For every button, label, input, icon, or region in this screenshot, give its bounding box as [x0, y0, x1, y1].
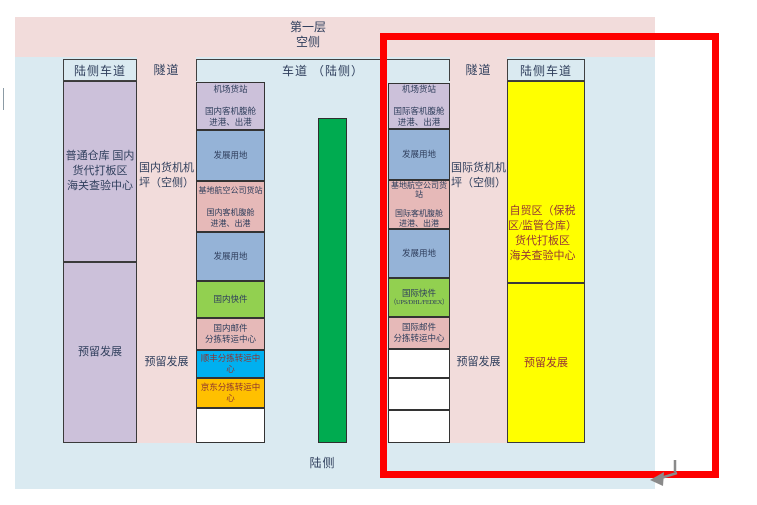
block-jd-sorting-center: 京东分拣转运中心: [196, 378, 265, 408]
return-arrow-cursor: [648, 452, 688, 494]
tunnel-strip-left: [137, 57, 196, 443]
diagram-title: 第一层 空侧: [268, 20, 348, 50]
reserved-development-left: 预留发展: [63, 262, 137, 443]
block-empty-domestic: [196, 408, 265, 443]
block-sf-sorting-center: 顺丰分拣转运中心: [196, 350, 265, 378]
domestic-freighter-apron-label: 国内货机机 坪（空侧）: [137, 161, 196, 191]
block-development-land-1: 发展用地: [196, 130, 265, 181]
block-development-land-2: 发展用地: [196, 232, 265, 281]
center-road-bar: [318, 118, 347, 443]
stray-mark: [3, 88, 4, 110]
header-tunnel-left: 隧道: [137, 62, 196, 78]
landside-bottom-label: 陆侧: [300, 455, 345, 471]
reserved-development-tunnel-left: 预留发展: [137, 355, 196, 370]
block-domestic-mail-center: 国内邮件 分拣转运中心: [196, 318, 265, 350]
block-base-airline-cargo-domestic: 基地航空公司货站 国内客机腹舱 进港、出港: [196, 181, 265, 232]
header-landside-lane-left: 陆侧车道: [63, 59, 137, 81]
highlight-rectangle: [380, 33, 719, 478]
block-airport-cargo-domestic: 机场货站 国内客机腹舱 进港、出港: [196, 82, 265, 130]
warehouse-customs-zone: 普通仓库 国内 货代打板区 海关查验中心: [63, 81, 137, 262]
block-domestic-express: 国内快件: [196, 281, 265, 318]
floor-plan-diagram: 第一层 空侧 陆侧车道 隧道 车道 （陆侧） 隧道 陆侧车道 普通仓库 国内 货…: [0, 0, 757, 505]
